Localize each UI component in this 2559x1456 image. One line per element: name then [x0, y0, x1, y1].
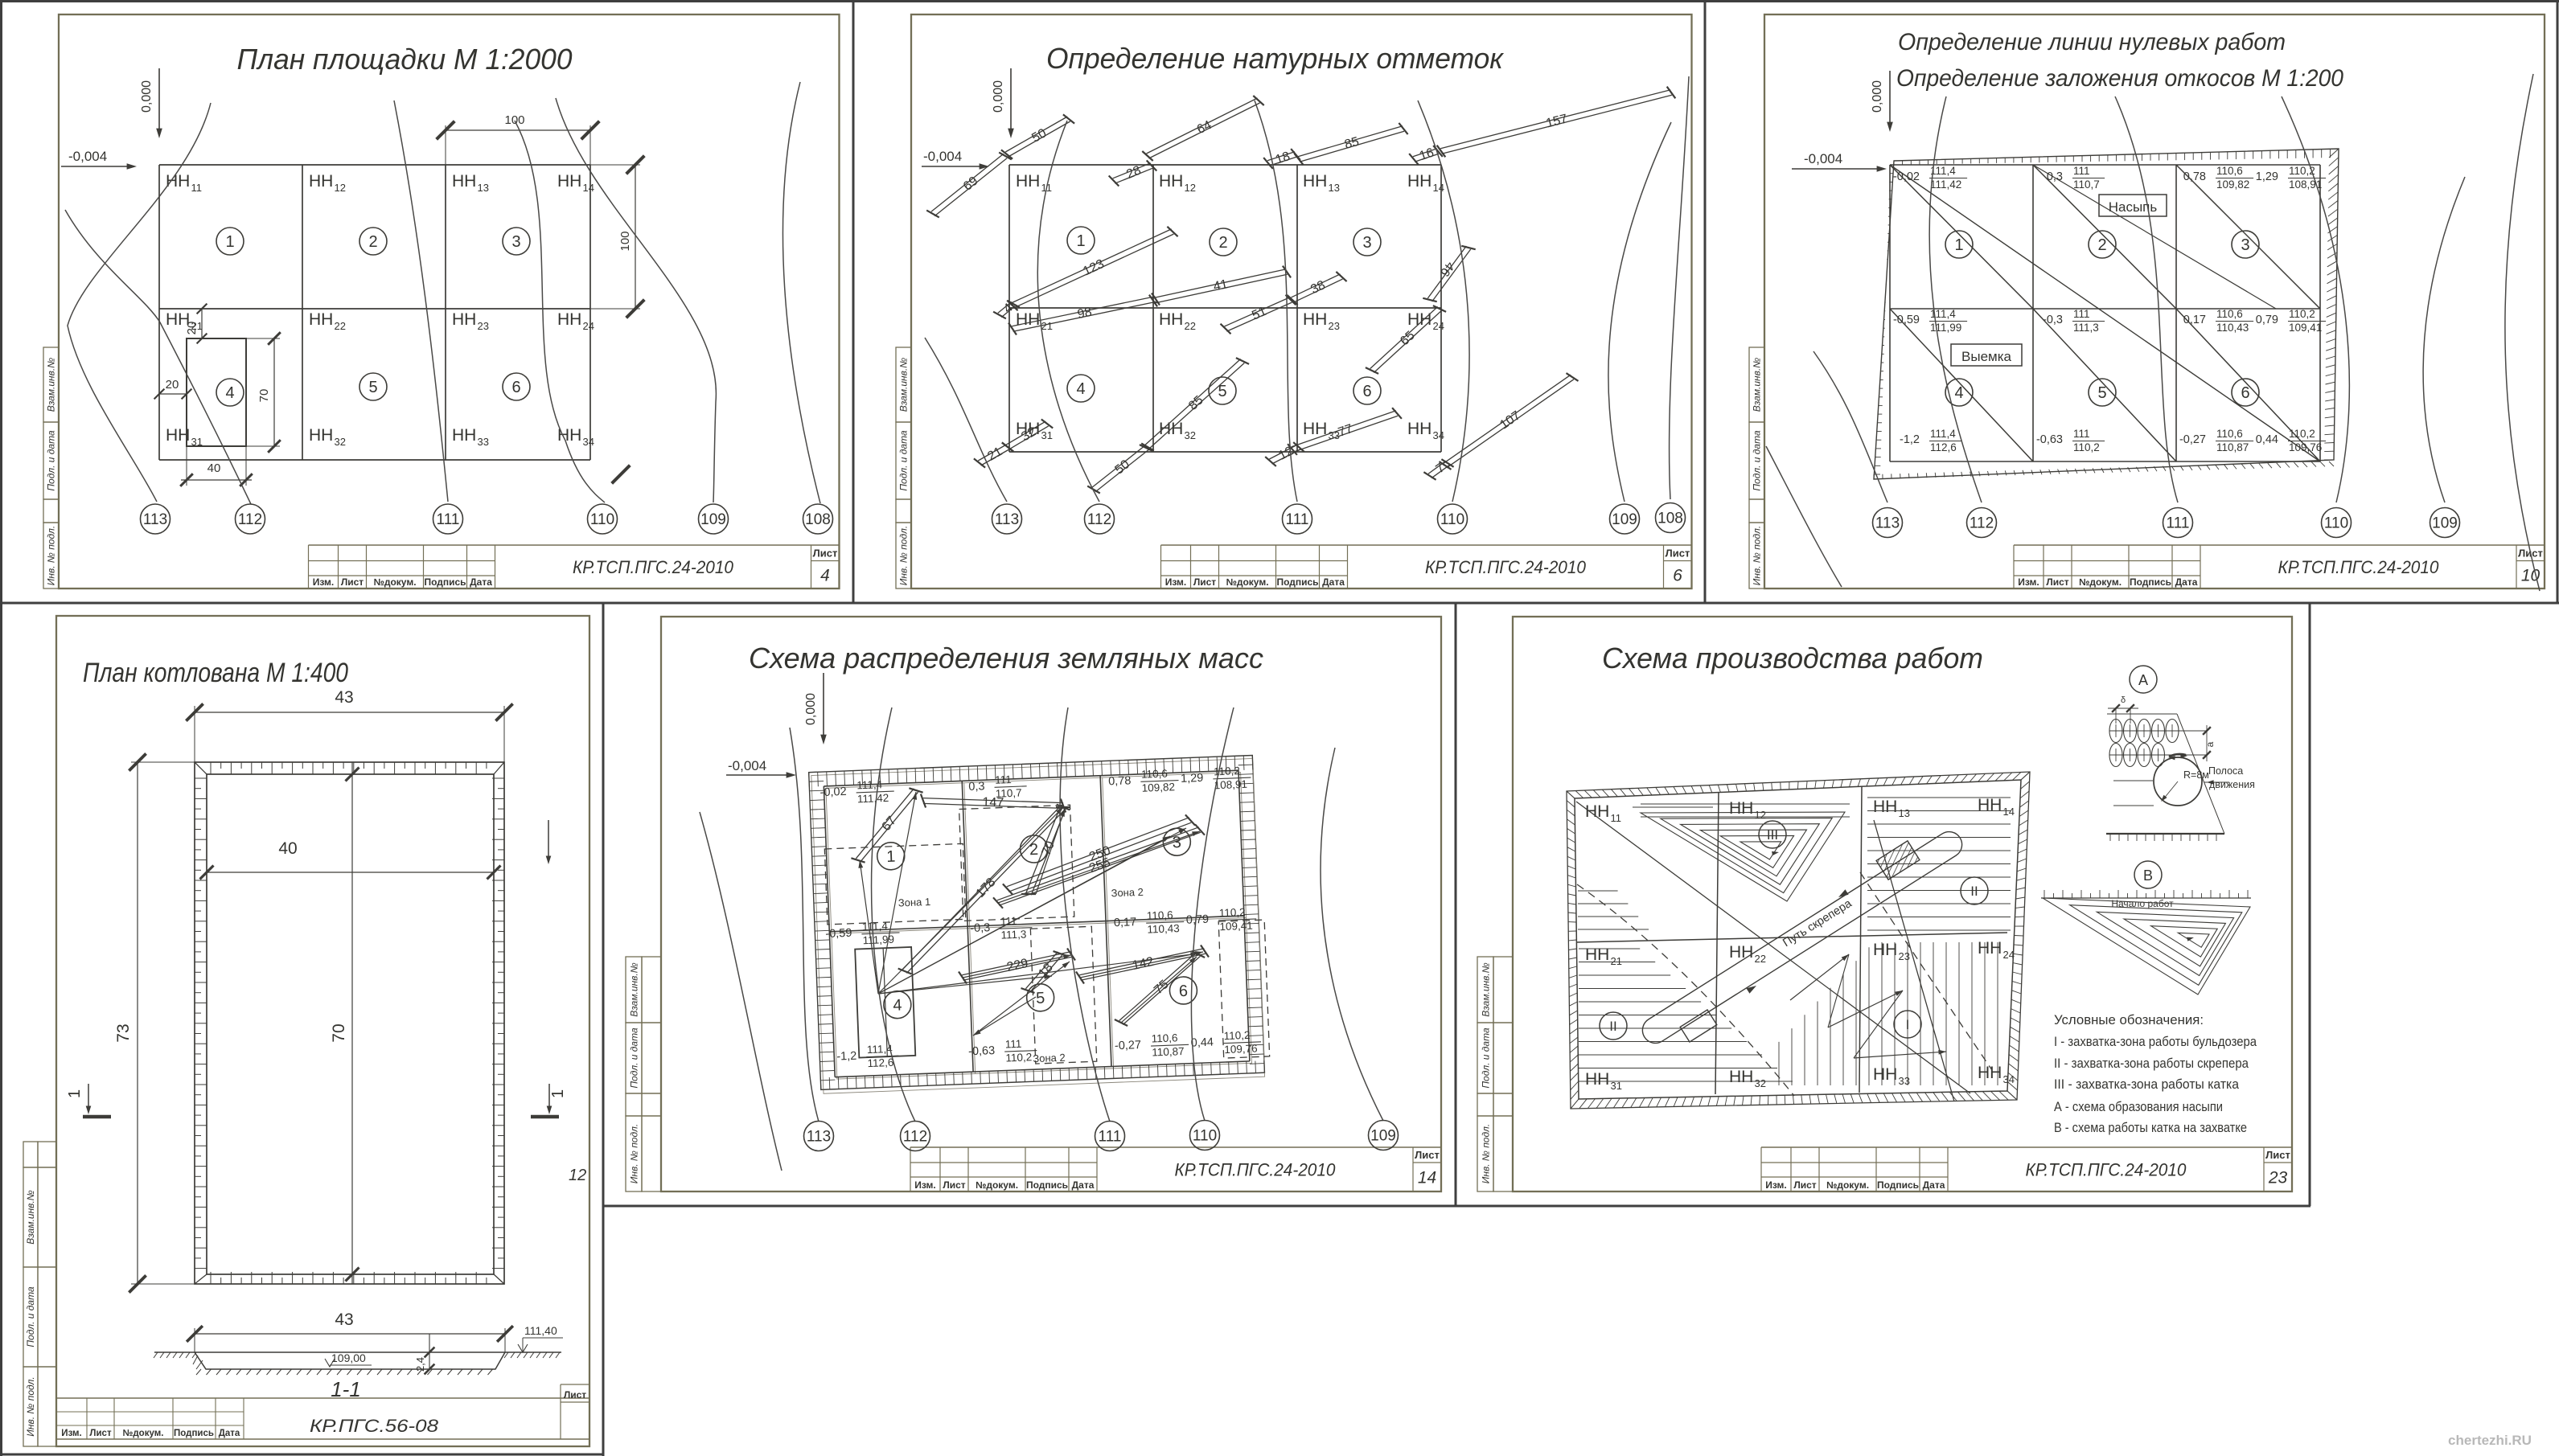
svg-text:4: 4: [1954, 384, 1963, 402]
svg-text:План площадки М 1:2000: План площадки М 1:2000: [237, 43, 573, 76]
svg-text:111,3: 111,3: [2073, 322, 2099, 334]
svg-text:12: 12: [1185, 182, 1196, 194]
svg-text:Лист: Лист: [2265, 1149, 2290, 1161]
svg-text:70: 70: [330, 1023, 348, 1042]
svg-text:НН: НН: [1729, 799, 1753, 818]
svg-text:4: 4: [1076, 380, 1085, 398]
svg-text:111,3: 111,3: [1000, 928, 1026, 941]
svg-text:109: 109: [1612, 511, 1637, 528]
svg-text:109,76: 109,76: [2289, 441, 2322, 453]
svg-text:12: 12: [1755, 809, 1766, 821]
svg-text:109,82: 109,82: [1141, 781, 1175, 794]
svg-text:-0,004: -0,004: [923, 149, 962, 164]
svg-text:0,79: 0,79: [2256, 314, 2278, 326]
svg-text:23: 23: [2268, 1169, 2288, 1187]
svg-text:I - захватка-зона работы бульд: I - захватка-зона работы бульдозера: [2054, 1034, 2257, 1049]
svg-text:112: 112: [238, 511, 262, 528]
svg-text:Дата: Дата: [1322, 576, 1345, 588]
svg-text:100: 100: [618, 231, 632, 251]
svg-text:Изм.: Изм.: [2018, 576, 2039, 588]
svg-text:Подл. и дата: Подл. и дата: [1752, 430, 1763, 491]
svg-text:111: 111: [2167, 515, 2190, 532]
svg-text:0,17: 0,17: [2183, 314, 2206, 326]
svg-text:Взам.инв.№: Взам.инв.№: [628, 962, 639, 1017]
svg-text:110,2: 110,2: [1005, 1051, 1032, 1064]
svg-text:20: 20: [166, 378, 179, 392]
svg-text:0,3: 0,3: [968, 780, 985, 794]
svg-text:21: 21: [1041, 320, 1053, 332]
svg-text:111: 111: [1005, 1038, 1022, 1051]
svg-text:111: 111: [2073, 165, 2090, 177]
svg-text:1,29: 1,29: [2256, 170, 2278, 183]
svg-text:Взам.инв.№: Взам.инв.№: [1480, 962, 1491, 1017]
svg-text:4: 4: [893, 996, 902, 1014]
svg-text:43: 43: [335, 1310, 353, 1329]
svg-text:Инв. № подл.: Инв. № подл.: [628, 1124, 639, 1183]
svg-text:КР.ТСП.ПГС.24-2010: КР.ТСП.ПГС.24-2010: [2026, 1159, 2187, 1179]
svg-text:Дата: Дата: [470, 576, 492, 588]
svg-text:Лист: Лист: [341, 576, 364, 588]
svg-text:0,3: 0,3: [2047, 170, 2063, 183]
svg-text:НН: НН: [1159, 310, 1183, 329]
svg-text:100: 100: [504, 113, 524, 127]
svg-text:23: 23: [1329, 320, 1340, 332]
svg-text:НН: НН: [309, 426, 333, 445]
svg-text:R=8м: R=8м: [2183, 769, 2209, 781]
svg-text:НН: НН: [309, 310, 333, 329]
svg-text:110,7: 110,7: [2073, 178, 2100, 191]
svg-text:112,6: 112,6: [1930, 441, 1957, 453]
svg-text:1,29: 1,29: [1181, 772, 1204, 785]
svg-text:КР.ТСП.ПГС.24-2010: КР.ТСП.ПГС.24-2010: [1425, 557, 1587, 577]
svg-text:НН: НН: [1873, 1065, 1897, 1084]
svg-text:НН: НН: [452, 426, 476, 445]
svg-text:1: 1: [225, 233, 234, 251]
svg-text:2: 2: [368, 233, 377, 251]
svg-text:24: 24: [2003, 949, 2015, 961]
svg-text:-0,004: -0,004: [68, 149, 107, 164]
svg-text:№докум.: №докум.: [2079, 576, 2122, 588]
svg-text:4: 4: [225, 384, 234, 402]
svg-text:А - схема образования насыпи: А - схема образования насыпи: [2054, 1099, 2223, 1114]
svg-text:Подпись: Подпись: [1276, 576, 1318, 588]
svg-text:111,42: 111,42: [1930, 178, 1961, 191]
svg-text:112: 112: [1087, 511, 1111, 528]
svg-text:110,87: 110,87: [2216, 441, 2249, 453]
svg-text:Подпись: Подпись: [1026, 1179, 1068, 1191]
svg-text:0,78: 0,78: [2183, 170, 2206, 183]
svg-text:№докум.: №докум.: [123, 1429, 164, 1438]
svg-text:5: 5: [2097, 384, 2106, 402]
svg-text:14: 14: [1433, 182, 1444, 194]
svg-text:2: 2: [1218, 234, 1227, 252]
svg-text:110: 110: [590, 511, 614, 528]
svg-text:-0,3: -0,3: [2043, 314, 2063, 326]
svg-text:Подл. и дата: Подл. и дата: [46, 430, 57, 491]
svg-text:Зона 2: Зона 2: [1111, 886, 1144, 900]
svg-text:108,91: 108,91: [1214, 778, 1247, 792]
svg-text:147: 147: [982, 796, 1004, 810]
svg-text:Условные обозначения:: Условные обозначения:: [2054, 1012, 2204, 1027]
svg-text:112: 112: [903, 1129, 927, 1146]
svg-text:109,00: 109,00: [331, 1351, 366, 1364]
svg-text:Подл. и дата: Подл. и дата: [1480, 1027, 1491, 1089]
svg-text:2,4: 2,4: [414, 1357, 426, 1372]
svg-text:НН: НН: [1585, 945, 1609, 964]
svg-text:0,000: 0,000: [140, 80, 154, 113]
svg-text:0,78: 0,78: [1108, 774, 1132, 788]
svg-text:112: 112: [1970, 515, 1994, 532]
svg-text:40: 40: [207, 461, 221, 475]
svg-text:Подл. и дата: Подл. и дата: [898, 430, 910, 491]
svg-text:Определение линии нулевых рабо: Определение линии нулевых работ: [1898, 29, 2286, 55]
svg-text:110,2: 110,2: [2289, 308, 2315, 320]
svg-text:110: 110: [1440, 511, 1464, 528]
svg-text:Лист: Лист: [1415, 1149, 1440, 1161]
svg-text:4: 4: [820, 566, 830, 584]
svg-text:0,44: 0,44: [1190, 1036, 1214, 1050]
svg-text:3: 3: [2241, 236, 2249, 254]
svg-text:112,6: 112,6: [867, 1056, 893, 1069]
svg-text:109: 109: [700, 511, 726, 528]
svg-text:22: 22: [1755, 953, 1766, 965]
svg-text:НН: НН: [1729, 943, 1753, 962]
svg-text:1: 1: [66, 1089, 84, 1098]
svg-text:32: 32: [335, 436, 346, 448]
svg-text:21: 21: [1611, 955, 1622, 967]
svg-text:111,4: 111,4: [1930, 165, 1956, 177]
svg-text:43: 43: [335, 688, 353, 707]
svg-text:113: 113: [1875, 515, 1900, 532]
svg-text:№докум.: №докум.: [1226, 576, 1268, 588]
svg-text:110,6: 110,6: [2216, 308, 2243, 320]
svg-text:Дата: Дата: [1923, 1179, 1945, 1191]
svg-text:33: 33: [1899, 1075, 1910, 1087]
svg-text:Лист: Лист: [813, 548, 838, 560]
svg-text:Дата: Дата: [1072, 1179, 1095, 1191]
svg-text:Лист: Лист: [2046, 576, 2068, 588]
svg-text:1-1: 1-1: [331, 1377, 361, 1401]
svg-text:34: 34: [2003, 1073, 2015, 1085]
svg-text:110,43: 110,43: [1147, 922, 1180, 936]
svg-text:110,6: 110,6: [1147, 908, 1173, 921]
svg-text:111: 111: [1099, 1129, 1122, 1146]
svg-text:НН: НН: [452, 172, 476, 191]
svg-text:В: В: [2143, 867, 2153, 884]
svg-text:11: 11: [1611, 812, 1622, 824]
svg-text:Инв. № подл.: Инв. № подл.: [1480, 1124, 1491, 1183]
svg-text:-0,02: -0,02: [1893, 170, 1920, 183]
svg-text:113: 113: [995, 511, 1019, 528]
svg-text:34: 34: [1433, 429, 1444, 441]
svg-text:II - захватка-зона работы скре: II - захватка-зона работы скрепера: [2054, 1056, 2249, 1071]
svg-text:111: 111: [995, 773, 1012, 786]
svg-text:II: II: [1609, 1019, 1616, 1034]
svg-text:δ: δ: [2121, 695, 2126, 705]
svg-text:110,6: 110,6: [2216, 428, 2243, 440]
svg-text:13: 13: [1899, 807, 1910, 819]
svg-text:НН: НН: [557, 426, 581, 445]
svg-text:110,2: 110,2: [2289, 428, 2315, 440]
svg-text:24: 24: [583, 320, 594, 332]
svg-text:-0,27: -0,27: [1115, 1039, 1142, 1052]
svg-text:6: 6: [2241, 384, 2249, 402]
svg-text:chertezhi.RU: chertezhi.RU: [2448, 1433, 2532, 1448]
svg-text:33: 33: [478, 436, 489, 448]
svg-text:109,76: 109,76: [1224, 1043, 1258, 1056]
svg-text:Лист: Лист: [89, 1429, 112, 1438]
svg-text:113: 113: [143, 511, 167, 528]
svg-text:-0,3: -0,3: [970, 921, 991, 935]
svg-text:2: 2: [2097, 236, 2106, 254]
svg-text:III: III: [1767, 827, 1778, 843]
svg-text:22: 22: [1185, 320, 1196, 332]
svg-text:НН: НН: [557, 310, 581, 329]
svg-text:Изм.: Изм.: [313, 576, 335, 588]
svg-text:Схема распределения земляных м: Схема распределения земляных масс: [749, 642, 1263, 675]
svg-text:№докум.: №докум.: [976, 1179, 1018, 1191]
svg-text:Полоса: Полоса: [2208, 765, 2243, 777]
svg-text:Инв. № подл.: Инв. № подл.: [898, 526, 910, 585]
svg-text:КР.ПГС.56-08: КР.ПГС.56-08: [310, 1416, 439, 1436]
svg-text:Взам.инв.№: Взам.инв.№: [25, 1190, 36, 1245]
svg-text:Дата: Дата: [219, 1429, 240, 1438]
svg-text:Подпись: Подпись: [174, 1429, 214, 1438]
svg-text:20: 20: [185, 322, 199, 335]
svg-text:0,17: 0,17: [1114, 916, 1137, 929]
svg-text:113: 113: [807, 1129, 831, 1146]
svg-text:В - схема работы катка на захв: В - схема работы катка на захватке: [2054, 1120, 2247, 1135]
svg-text:108,91: 108,91: [2289, 178, 2322, 191]
svg-text:НН: НН: [1303, 172, 1327, 191]
svg-text:-0,02: -0,02: [819, 785, 847, 799]
svg-text:НН: НН: [1873, 941, 1897, 959]
svg-text:111,42: 111,42: [857, 792, 889, 805]
svg-text:0,000: 0,000: [804, 693, 818, 725]
svg-text:НН: НН: [1016, 310, 1040, 329]
svg-text:НН: НН: [1585, 802, 1609, 821]
svg-text:0,79: 0,79: [1186, 913, 1210, 927]
svg-text:-0,004: -0,004: [728, 758, 766, 773]
svg-text:5: 5: [1036, 990, 1045, 1007]
svg-text:-0,27: -0,27: [2179, 433, 2206, 446]
svg-text:Инв. № подл.: Инв. № подл.: [1752, 526, 1763, 585]
svg-text:НН: НН: [1159, 172, 1183, 191]
svg-text:Определение заложения откосов: Определение заложения откосов М 1:200: [1896, 65, 2343, 92]
svg-text:22: 22: [335, 320, 346, 332]
svg-text:0,000: 0,000: [992, 80, 1005, 113]
svg-text:1: 1: [886, 848, 896, 866]
svg-text:НН: НН: [1303, 310, 1327, 329]
svg-text:Подпись: Подпись: [1877, 1179, 1919, 1191]
svg-text:Изм.: Изм.: [914, 1179, 936, 1191]
svg-text:70: 70: [257, 389, 271, 403]
svg-text:109: 109: [2432, 515, 2458, 532]
svg-text:НН: НН: [557, 172, 581, 191]
svg-text:Подл. и дата: Подл. и дата: [628, 1027, 639, 1089]
svg-text:II: II: [1970, 884, 1978, 899]
svg-text:-0,59: -0,59: [825, 927, 852, 941]
svg-text:23: 23: [478, 320, 489, 332]
svg-text:Подпись: Подпись: [2130, 576, 2171, 588]
svg-text:Подл. и дата: Подл. и дата: [25, 1286, 36, 1347]
svg-text:I: I: [1906, 1017, 1910, 1032]
svg-text:6: 6: [511, 379, 520, 396]
svg-text:111: 111: [1000, 915, 1017, 928]
svg-text:110: 110: [1193, 1128, 1217, 1145]
svg-text:НН: НН: [1407, 420, 1431, 438]
svg-text:№докум.: №докум.: [373, 576, 416, 588]
svg-text:А: А: [2138, 672, 2148, 688]
svg-text:Лист: Лист: [1793, 1179, 1816, 1191]
svg-text:-0,59: -0,59: [1893, 314, 1920, 326]
svg-text:5: 5: [368, 379, 377, 396]
svg-text:111,99: 111,99: [862, 933, 894, 946]
svg-text:Лист: Лист: [564, 1389, 586, 1401]
svg-text:111,4: 111,4: [862, 920, 889, 933]
svg-text:0,44: 0,44: [2256, 433, 2278, 446]
svg-text:Насыпь: Насыпь: [2109, 199, 2158, 215]
svg-text:Лист: Лист: [943, 1179, 965, 1191]
svg-text:31: 31: [1041, 429, 1053, 441]
svg-text:План котлована М 1:400: План котлована М 1:400: [83, 658, 348, 688]
svg-text:11: 11: [191, 182, 203, 194]
svg-text:32: 32: [1755, 1077, 1766, 1089]
svg-text:Схема производства работ: Схема производства работ: [1602, 642, 1983, 675]
svg-text:-1,2: -1,2: [836, 1050, 857, 1064]
svg-text:Изм.: Изм.: [1765, 1179, 1787, 1191]
svg-text:Выемка: Выемка: [1961, 349, 2012, 364]
svg-text:НН: НН: [1016, 172, 1040, 191]
svg-text:24: 24: [1433, 320, 1444, 332]
svg-text:110,2: 110,2: [1223, 1029, 1250, 1042]
svg-text:НН: НН: [1873, 798, 1897, 816]
svg-text:НН: НН: [452, 310, 476, 329]
svg-text:111: 111: [437, 511, 460, 528]
svg-text:40: 40: [278, 839, 297, 858]
svg-text:Определение натурных отметок: Определение натурных отметок: [1046, 42, 1505, 75]
svg-text:1: 1: [549, 1089, 567, 1098]
svg-text:КР.ТСП.ПГС.24-2010: КР.ТСП.ПГС.24-2010: [2278, 557, 2440, 577]
svg-text:1: 1: [1954, 236, 1963, 254]
svg-text:3: 3: [511, 233, 520, 251]
svg-text:КР.ТСП.ПГС.24-2010: КР.ТСП.ПГС.24-2010: [1175, 1159, 1337, 1179]
svg-text:111,4: 111,4: [1930, 428, 1956, 440]
svg-text:3: 3: [1362, 234, 1371, 252]
svg-text:НН: НН: [166, 172, 190, 191]
svg-text:6: 6: [1178, 982, 1188, 1000]
svg-text:12: 12: [335, 182, 346, 194]
svg-text:109,41: 109,41: [1219, 920, 1253, 933]
svg-text:110,6: 110,6: [2216, 165, 2243, 177]
svg-text:КР.ТСП.ПГС.24-2010: КР.ТСП.ПГС.24-2010: [573, 557, 734, 577]
svg-text:2: 2: [1029, 841, 1039, 859]
svg-text:1: 1: [1076, 232, 1085, 250]
svg-text:12: 12: [569, 1167, 586, 1184]
svg-text:НН: НН: [1407, 310, 1431, 329]
svg-text:14: 14: [1418, 1169, 1436, 1187]
svg-text:НН: НН: [1585, 1070, 1609, 1089]
svg-text:Взам.инв.№: Взам.инв.№: [46, 358, 57, 412]
svg-text:73: 73: [114, 1023, 133, 1042]
svg-text:14: 14: [583, 182, 594, 194]
svg-text:№докум.: №докум.: [1826, 1179, 1869, 1191]
svg-text:Подпись: Подпись: [424, 576, 466, 588]
svg-text:6: 6: [1673, 566, 1682, 584]
svg-text:-0,63: -0,63: [968, 1044, 996, 1058]
svg-text:111: 111: [2073, 308, 2090, 320]
svg-text:движения: движения: [2209, 779, 2255, 790]
svg-text:111: 111: [2073, 428, 2090, 440]
svg-text:14: 14: [2003, 806, 2015, 818]
svg-text:Инв. № подл.: Инв. № подл.: [25, 1376, 36, 1436]
svg-text:Взам.инв.№: Взам.инв.№: [1752, 358, 1763, 412]
svg-text:111: 111: [1286, 511, 1309, 528]
svg-text:НН: НН: [1729, 1068, 1753, 1086]
svg-text:98: 98: [1076, 306, 1093, 322]
svg-text:111,99: 111,99: [1930, 322, 1961, 334]
svg-text:109,41: 109,41: [2289, 322, 2322, 334]
svg-text:32: 32: [1185, 429, 1196, 441]
svg-text:110,43: 110,43: [2216, 322, 2249, 334]
svg-text:Зона 2: Зона 2: [1033, 1052, 1066, 1065]
svg-text:110,87: 110,87: [1152, 1045, 1185, 1059]
svg-text:109,82: 109,82: [2216, 178, 2249, 191]
svg-text:110,6: 110,6: [1141, 768, 1168, 781]
svg-text:НН: НН: [1978, 939, 2002, 958]
svg-text:110,6: 110,6: [1151, 1032, 1177, 1044]
svg-text:110,2: 110,2: [2073, 441, 2100, 453]
svg-text:13: 13: [478, 182, 489, 194]
svg-text:Зона 1: Зона 1: [898, 896, 931, 909]
svg-text:НН: НН: [1978, 796, 2002, 814]
svg-text:-0,004: -0,004: [1804, 151, 1842, 166]
svg-text:Дата: Дата: [2175, 576, 2198, 588]
svg-text:23: 23: [1899, 950, 1910, 962]
svg-text:108: 108: [805, 511, 831, 528]
svg-text:-0,63: -0,63: [2036, 433, 2063, 446]
svg-text:Взам.инв.№: Взам.инв.№: [898, 358, 910, 412]
svg-text:Лист: Лист: [1666, 548, 1690, 560]
svg-text:34: 34: [583, 436, 594, 448]
svg-text:108: 108: [1657, 511, 1683, 527]
svg-text:6: 6: [1362, 383, 1371, 400]
svg-text:13: 13: [1329, 182, 1340, 194]
svg-text:-1,2: -1,2: [1900, 433, 1920, 446]
svg-text:0,000: 0,000: [1871, 80, 1884, 113]
svg-text:III - захватка-зона работы кат: III - захватка-зона работы катка: [2054, 1077, 2240, 1092]
svg-text:110: 110: [2324, 515, 2348, 532]
svg-text:109: 109: [1370, 1128, 1396, 1145]
svg-text:Изм.: Изм.: [61, 1429, 81, 1438]
svg-text:Инв. № подл.: Инв. № подл.: [46, 526, 57, 585]
svg-text:a: a: [2204, 741, 2216, 747]
svg-text:110,2: 110,2: [1218, 906, 1245, 919]
svg-text:НН: НН: [309, 172, 333, 191]
svg-text:Изм.: Изм.: [1165, 576, 1187, 588]
svg-text:НН: НН: [1407, 172, 1431, 191]
svg-text:Лист: Лист: [1193, 576, 1216, 588]
svg-text:111,40: 111,40: [524, 1324, 557, 1337]
